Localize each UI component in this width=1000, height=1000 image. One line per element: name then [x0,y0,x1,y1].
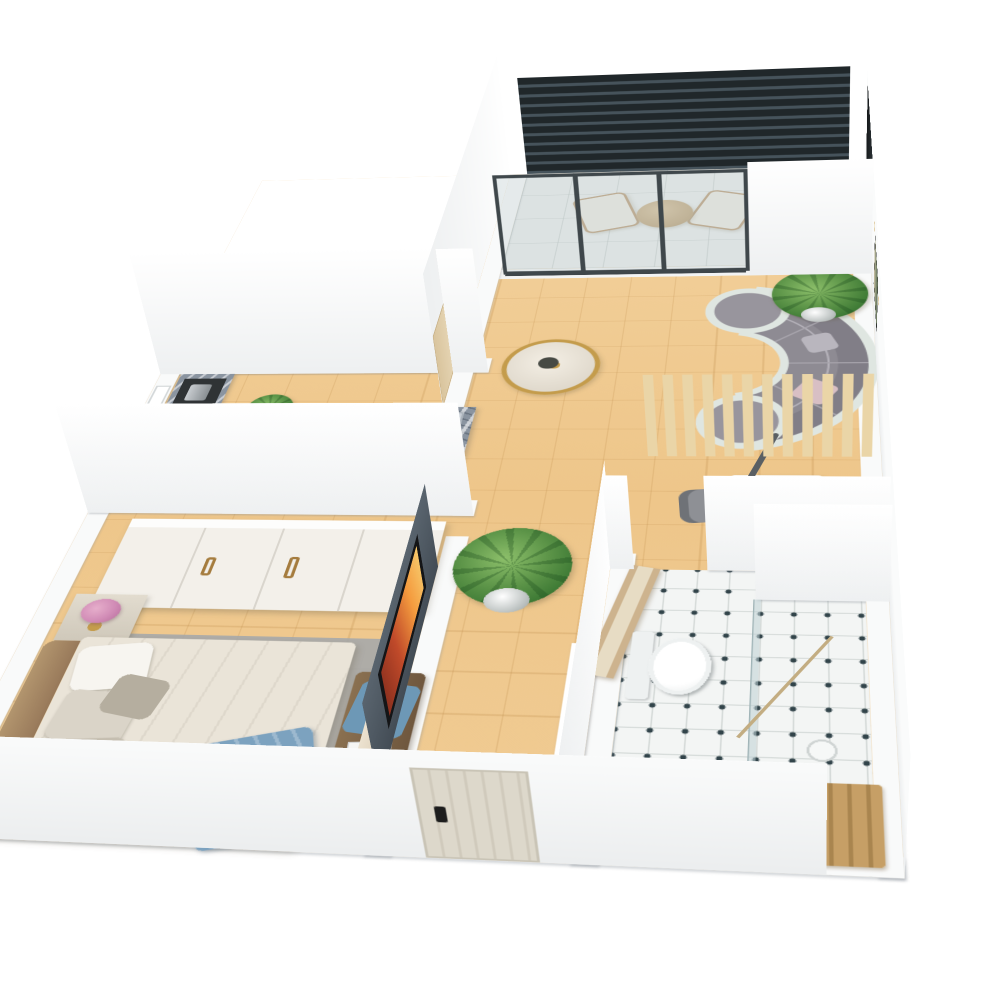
apartment-3d-plan [0,165,929,880]
bedroom-north-standing-wall [55,403,474,516]
floor-plan-stage [0,0,1000,1000]
glass-panels [492,169,750,275]
door-lock [434,806,448,822]
framed-artwork [874,232,878,335]
wall-segment [747,159,874,276]
bathroom-niche-standing-wall [754,504,893,602]
balcony-louver-wall [517,66,850,174]
slat-partition [643,374,884,457]
wall-sconce [878,291,879,309]
sliding-glass-wall [485,159,874,279]
entry-door [409,767,540,862]
